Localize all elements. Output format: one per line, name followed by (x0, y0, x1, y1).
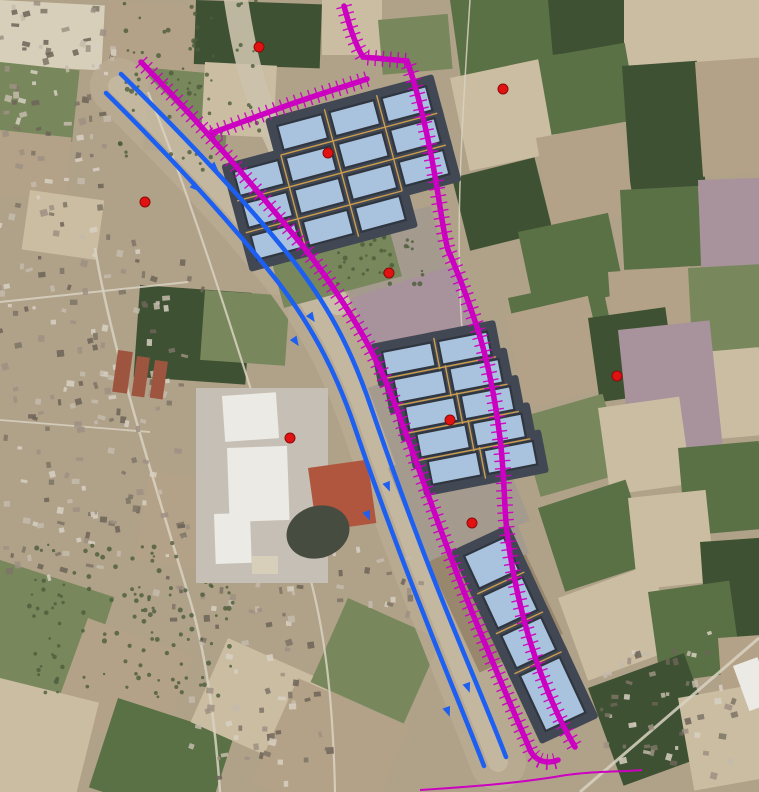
red-marker (384, 268, 394, 278)
red-marker (285, 433, 295, 443)
red-marker (467, 518, 477, 528)
red-marker (498, 84, 508, 94)
red-marker (445, 415, 455, 425)
red-marker (140, 197, 150, 207)
satellite-map-viewport[interactable] (0, 0, 759, 792)
red-marker (323, 148, 333, 158)
satellite-map-canvas[interactable] (0, 0, 759, 792)
red-marker (254, 42, 264, 52)
red-marker (612, 371, 622, 381)
